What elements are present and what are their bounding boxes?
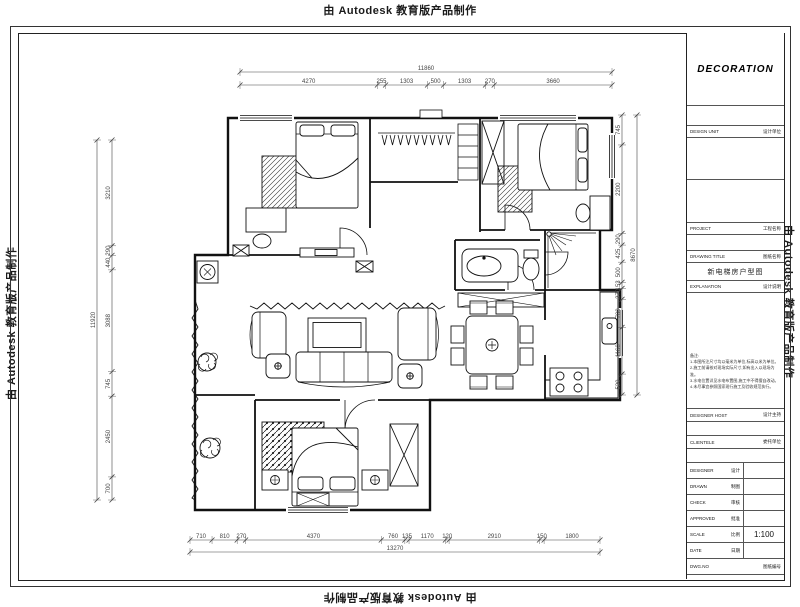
dining-chair-icon <box>496 376 513 389</box>
dim-label: 120 <box>442 534 453 540</box>
cad-sheet: 由 Autodesk 教育版产品制作 由 Autodesk 教育版产品制作 由 … <box>0 0 800 607</box>
dim-label: 745 <box>106 378 112 389</box>
approved-value <box>744 511 784 526</box>
designer-label: DESIGNER <box>690 468 714 473</box>
bed-icon <box>518 124 588 190</box>
note-line: 4.未尽事宜参照国家现行施工及验收规范执行。 <box>690 384 781 390</box>
dim-label: 1303 <box>400 79 414 85</box>
explanation-row: EXPLANATION 设计说明 <box>687 281 784 293</box>
door-arcs <box>340 205 575 430</box>
hangers-icon <box>382 135 451 145</box>
approved-label: APPROVED <box>690 516 715 521</box>
rug-icon <box>262 156 300 208</box>
wardrobe3-icon <box>390 424 418 486</box>
dim-label: 3660 <box>546 79 560 85</box>
dim-label: 13270 <box>387 546 404 552</box>
dim-label: 3210 <box>106 186 112 200</box>
dim-label: 153 <box>616 280 622 291</box>
dim-label: 8670 <box>631 248 637 262</box>
designer-value <box>744 463 784 478</box>
sofa-icon <box>296 352 392 387</box>
date-value <box>744 543 784 558</box>
dim-label: 500 <box>616 267 622 278</box>
scale-label: SCALE <box>690 532 705 537</box>
approved-row: APPROVED批准 <box>687 511 784 527</box>
dining-chair-icon <box>451 326 464 343</box>
dim-label: 290 <box>106 245 112 256</box>
clientele-value: 委托单位 <box>763 439 781 445</box>
dim-label: 745 <box>616 124 622 135</box>
dim-label: 255 <box>376 79 387 85</box>
date-row: DATE日期 <box>687 543 784 559</box>
designer-cn: 设计 <box>731 468 740 474</box>
bedroom3-furniture <box>262 422 388 506</box>
designer-host-label: DESIGNER HOST <box>690 413 727 418</box>
bed-icon <box>296 122 358 208</box>
dim-label: 1303 <box>458 79 472 85</box>
floor-plan: 4270255130350013032703660118607108102704… <box>0 0 800 607</box>
desk-icon <box>246 208 286 248</box>
dim-label: 270 <box>485 79 496 85</box>
shower-icon <box>547 232 596 288</box>
dim-label: 700 <box>106 483 112 494</box>
desk-icon <box>576 196 610 230</box>
check-row: CHECK审核 <box>687 495 784 511</box>
tv-cabinet-icon <box>300 248 354 257</box>
dim-label: 710 <box>196 534 207 540</box>
drawn-label: DRAWN <box>690 484 707 489</box>
column-x <box>233 245 249 256</box>
dim-chain: 11860 <box>238 66 615 76</box>
dim-label: 1800 <box>565 534 579 540</box>
dim-label: 1170 <box>421 534 435 540</box>
dim-label: 11920 <box>91 311 97 328</box>
dim-label: 440 <box>106 257 112 268</box>
dim-label: 2200 <box>616 182 622 196</box>
clientele-label: CLIENTELE <box>690 440 715 445</box>
scale-value: 1:100 <box>744 527 784 542</box>
drawing-title-label: DRAWING TITLE <box>690 254 725 259</box>
design-unit-value: 设计单位 <box>763 129 781 135</box>
column-x <box>356 261 373 272</box>
dim-chain: 321029044030887452450700 <box>106 138 116 503</box>
dim-label: 700 <box>616 308 622 319</box>
dim-chain: 4270255130350013032703660 <box>238 79 615 89</box>
drawing-title-value: 图纸名称 <box>763 254 781 260</box>
notes-block: 备注: 1.本图所注尺寸均以毫米为单位,标高以米为单位。2.施工前请核对现场实际… <box>687 351 784 409</box>
nightstand-icon <box>262 470 288 490</box>
scale-row: SCALE比例 1:100 <box>687 527 784 543</box>
check-value <box>744 495 784 510</box>
dim-label: 150 <box>537 534 548 540</box>
design-unit-box <box>687 138 784 180</box>
side-table-icon <box>266 354 290 378</box>
designer-host-value: 设计主持 <box>763 412 781 418</box>
designer-host-box <box>687 422 784 436</box>
dwg-value: 图纸编号 <box>763 564 781 570</box>
dim-label: 760 <box>388 534 399 540</box>
bedroom2-furniture <box>498 124 610 230</box>
dim-label: 2910 <box>488 534 502 540</box>
dim-label: 4270 <box>302 79 316 85</box>
dim-label: 2450 <box>106 429 112 443</box>
dim-chain: 13270 <box>188 546 603 556</box>
check-cn: 审核 <box>731 500 740 506</box>
armchair-icon <box>250 312 286 358</box>
explanation-box <box>687 293 784 351</box>
dim-chain: 11920 <box>91 138 101 503</box>
bedroom1-furniture <box>246 122 358 257</box>
dim-label: 270 <box>616 288 622 299</box>
clientele-box <box>687 449 784 463</box>
plant-icon <box>200 438 220 458</box>
titleblock-spacer <box>687 106 784 126</box>
dim-label: 4370 <box>307 534 321 540</box>
dining-chair-icon <box>470 301 487 314</box>
nightstand-icon <box>362 470 388 490</box>
notes-lines: 1.本图所注尺寸均以毫米为单位,标高以米为单位。2.施工前请核对现场实际尺寸,如… <box>690 359 781 390</box>
washing-machine-icon <box>197 261 218 283</box>
date-label: DATE <box>690 548 702 553</box>
clientele-row: CLIENTELE 委托单位 <box>687 436 784 449</box>
dim-label: 11860 <box>418 66 435 72</box>
design-unit-row: DESIGN UNIT 设计单位 <box>687 126 784 138</box>
armchair-icon <box>398 308 439 360</box>
dining-chair-icon <box>520 326 533 343</box>
drawing-title-row: DRAWING TITLE 图纸名称 <box>687 251 784 263</box>
title-block: DECORATION DESIGN UNIT 设计单位 PROJECT 工程名称… <box>686 33 784 579</box>
stove-icon <box>550 368 588 396</box>
side-table-icon <box>398 364 422 388</box>
dim-label: 135 <box>402 534 413 540</box>
toilet-icon <box>523 250 539 280</box>
dim-label: 520 <box>616 379 622 390</box>
kitchen-fixtures <box>545 292 618 398</box>
dim-chain: 74522002904255001532707001160520 <box>616 113 626 398</box>
dining-chair-icon <box>496 301 513 314</box>
project-label: PROJECT <box>690 226 711 231</box>
designer-host-row: DESIGNER HOST 设计主持 <box>687 409 784 422</box>
dim-label: 500 <box>431 79 442 85</box>
design-unit-label: DESIGN UNIT <box>690 129 719 134</box>
approved-cn: 批准 <box>731 516 740 522</box>
dim-chain: 7108102704370760135117012029101501800 <box>188 534 603 544</box>
dim-label: 270 <box>236 534 247 540</box>
dim-label: 3088 <box>106 313 112 327</box>
dim-label: 1160 <box>616 344 622 358</box>
note-line: 2.施工前请核对现场实际尺寸,如有出入以现场为准。 <box>690 365 781 377</box>
dim-label: 425 <box>616 248 622 259</box>
dim-label: 810 <box>220 534 231 540</box>
dining-chair-icon <box>451 348 464 365</box>
explanation-label: EXPLANATION <box>690 284 721 289</box>
designer-row: DESIGNER设计 <box>687 463 784 479</box>
vanity-sink-icon <box>462 249 518 282</box>
date-cn: 日期 <box>731 548 740 554</box>
bench-icon <box>297 493 329 506</box>
dining-furniture <box>451 301 533 389</box>
dim-chain: 8670 <box>631 113 641 398</box>
drawn-cn: 制图 <box>731 484 740 490</box>
project-row: PROJECT 工程名称 <box>687 223 784 235</box>
dim-label: 290 <box>616 234 622 245</box>
check-label: CHECK <box>690 500 706 505</box>
project-box <box>687 235 784 251</box>
explanation-value: 设计说明 <box>763 284 781 290</box>
shelves-icon <box>458 124 478 180</box>
scale-cn: 比例 <box>731 532 740 538</box>
dining-chair-icon <box>470 376 487 389</box>
dwg-row: DWG.NO 图纸编号 <box>687 559 784 575</box>
project-value: 工程名称 <box>763 226 781 232</box>
drawn-row: DRAWN制图 <box>687 479 784 495</box>
dwg-label: DWG.NO <box>690 564 709 569</box>
titleblock-spacer <box>687 575 784 579</box>
dining-chair-icon <box>520 348 533 365</box>
plant-icon <box>198 353 217 371</box>
kitchen-sink-icon <box>602 318 617 344</box>
logo-decoration: DECORATION <box>687 33 784 106</box>
drawing-title-cn: 新电梯房户型图 <box>687 263 784 281</box>
titleblock-spacer <box>687 180 784 223</box>
drawn-value <box>744 479 784 494</box>
cloakroom <box>378 110 478 180</box>
coffee-table-icon <box>308 318 366 352</box>
bathroom-fixtures <box>458 232 596 307</box>
